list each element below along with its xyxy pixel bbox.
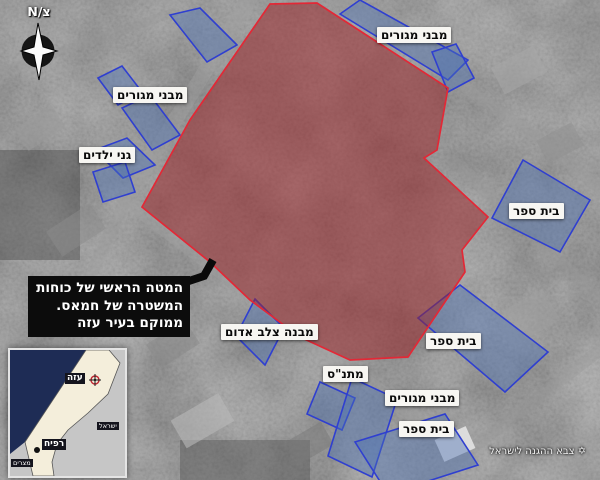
compass-north-label: צ/N: [16, 4, 62, 19]
inset-map-graphic: [10, 350, 125, 476]
label-school-mid-right: בית ספר: [426, 333, 481, 349]
label-school-bottom: בית ספר: [399, 421, 454, 437]
inset-label-egypt: מצרים: [11, 459, 33, 467]
callout-line-3: ממוקם בעיר עזה: [35, 315, 183, 333]
label-school-top-right: בית ספר: [509, 203, 564, 219]
callout-line-2: המשטרה של חמאס.: [35, 298, 183, 316]
label-residential-bottom: מבני מגורים: [385, 390, 459, 406]
inset-label-gaza: עזה: [65, 373, 85, 384]
inset-label-israel: ישראל: [97, 422, 119, 430]
rafah-dot-marker: [34, 447, 40, 453]
inset-locator-map: עזהרפיחישראלמצרים: [8, 348, 127, 478]
label-red-cross-building: מבנה צלב אדום: [221, 324, 318, 340]
inset-label-rafah: רפיח: [42, 439, 66, 450]
idf-emblem-icon: ✡: [578, 446, 586, 457]
annotated-satellite-map: צ/N מבני מגוריםמבני מגוריםגני ילדיםבית ס…: [0, 0, 600, 480]
callout-line-1: המטה הראשי של כוחות: [35, 280, 183, 298]
callout-box: המטה הראשי של כוחות המשטרה של חמאס. ממוק…: [28, 276, 190, 337]
credit-line: ✡ צבא ההגנה לישראל: [489, 446, 586, 457]
credit-text: צבא ההגנה לישראל: [489, 446, 575, 457]
label-kindergartens: גני ילדים: [79, 147, 135, 163]
label-community-center: מתנ"ס: [323, 366, 368, 382]
label-residential-top: מבני מגורים: [377, 27, 451, 43]
label-residential-left: מבני מגורים: [113, 87, 187, 103]
